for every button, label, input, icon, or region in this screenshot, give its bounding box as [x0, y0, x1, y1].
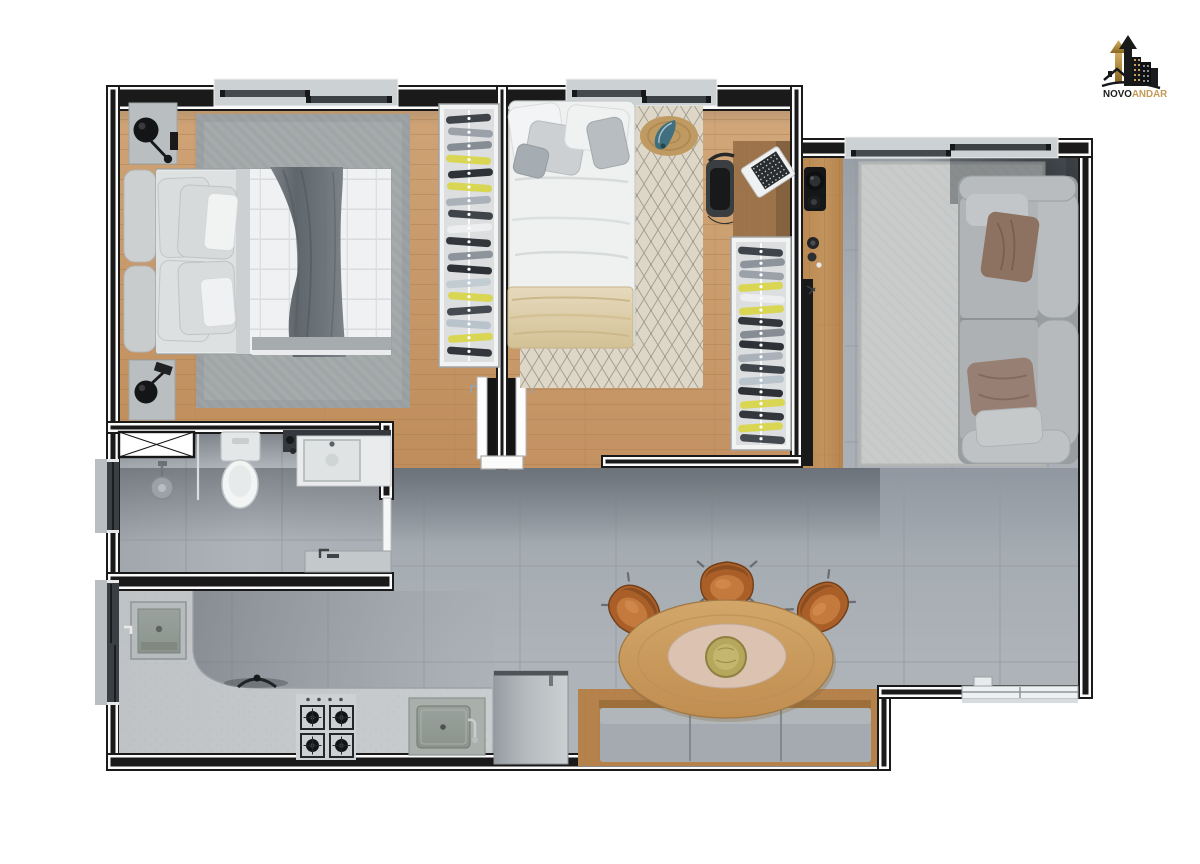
svg-text:NOVOANDAR: NOVOANDAR	[1103, 89, 1167, 100]
